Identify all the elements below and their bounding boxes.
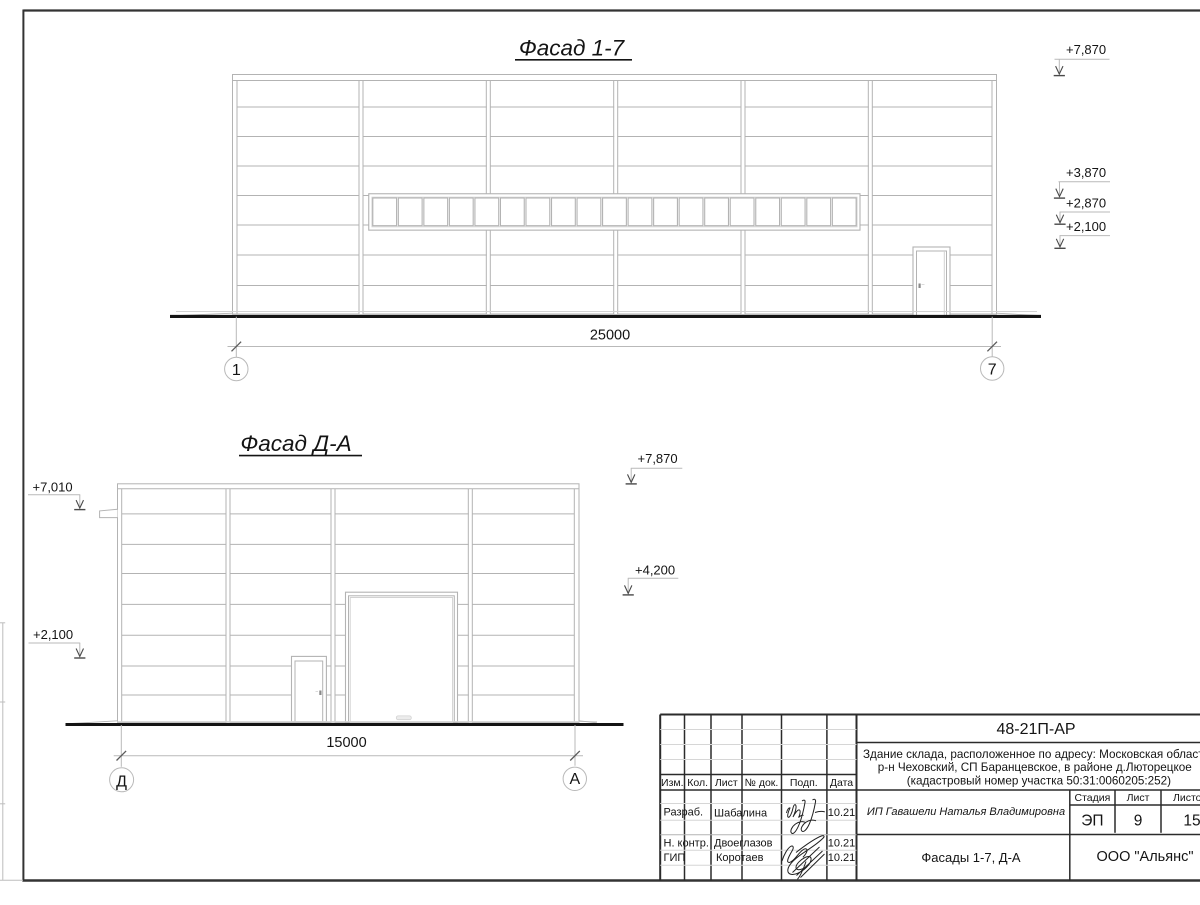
svg-text:+2,100: +2,100: [1066, 219, 1106, 234]
svg-text:Фасад Д-А: Фасад Д-А: [240, 431, 351, 456]
svg-text:Шабалина: Шабалина: [714, 808, 768, 820]
svg-text:15000: 15000: [326, 735, 366, 751]
svg-text:Лист: Лист: [715, 777, 738, 789]
svg-text:+3,870: +3,870: [1066, 165, 1106, 180]
svg-text:Здание склада, расположенное п: Здание склада, расположенное по адресу: …: [863, 748, 1200, 761]
svg-text:Д: Д: [116, 773, 127, 790]
svg-text:Разраб.: Разраб.: [664, 807, 704, 819]
svg-text:Коротаев: Коротаев: [716, 852, 764, 864]
svg-text:А: А: [569, 771, 580, 788]
svg-text:+2,870: +2,870: [1066, 196, 1106, 211]
svg-text:№ док.: № док.: [745, 777, 779, 789]
svg-text:+7,870: +7,870: [638, 451, 678, 466]
svg-text:Листов: Листов: [1173, 792, 1200, 804]
svg-text:1: 1: [232, 362, 241, 379]
svg-text:ООО "Альянс": ООО "Альянс": [1097, 849, 1194, 865]
svg-text:Двоеглазов: Двоеглазов: [714, 838, 773, 850]
svg-text:Фасады 1-7, Д-А: Фасады 1-7, Д-А: [921, 850, 1021, 865]
svg-text:ЭП: ЭП: [1081, 812, 1103, 829]
svg-text:7: 7: [988, 361, 997, 378]
svg-text:р-н Чеховский, СП Баранцевское: р-н Чеховский, СП Баранцевское, в районе…: [878, 761, 1192, 774]
svg-text:15: 15: [1183, 812, 1200, 829]
svg-text:(кадастровый номер участка 50:: (кадастровый номер участка 50:31:0060205…: [907, 775, 1171, 788]
svg-text:+2,100: +2,100: [33, 627, 73, 642]
svg-text:10.21: 10.21: [828, 807, 856, 819]
svg-text:+7,010: +7,010: [33, 480, 73, 495]
svg-text:ГИП: ГИП: [664, 852, 686, 864]
svg-text:Лист: Лист: [1127, 792, 1150, 804]
svg-text:ИП Гавашели Наталья Владимиров: ИП Гавашели Наталья Владимировна: [867, 806, 1065, 818]
svg-text:Кол.: Кол.: [687, 777, 708, 789]
svg-text:Подп.: Подп.: [790, 777, 818, 789]
svg-text:Дата: Дата: [830, 777, 853, 789]
svg-text:+4,200: +4,200: [635, 563, 675, 578]
svg-text:9: 9: [1134, 812, 1143, 829]
svg-text:+7,870: +7,870: [1066, 42, 1106, 57]
svg-text:Н. контр.: Н. контр.: [664, 838, 709, 850]
svg-text:10.21: 10.21: [828, 837, 856, 849]
svg-text:Изм.: Изм.: [661, 777, 684, 789]
svg-text:10.21: 10.21: [828, 852, 856, 864]
svg-text:25000: 25000: [590, 327, 630, 343]
svg-text:Фасад 1-7: Фасад 1-7: [519, 36, 626, 61]
svg-text:Стадия: Стадия: [1075, 792, 1111, 804]
svg-text:48-21П-АР: 48-21П-АР: [996, 721, 1075, 738]
